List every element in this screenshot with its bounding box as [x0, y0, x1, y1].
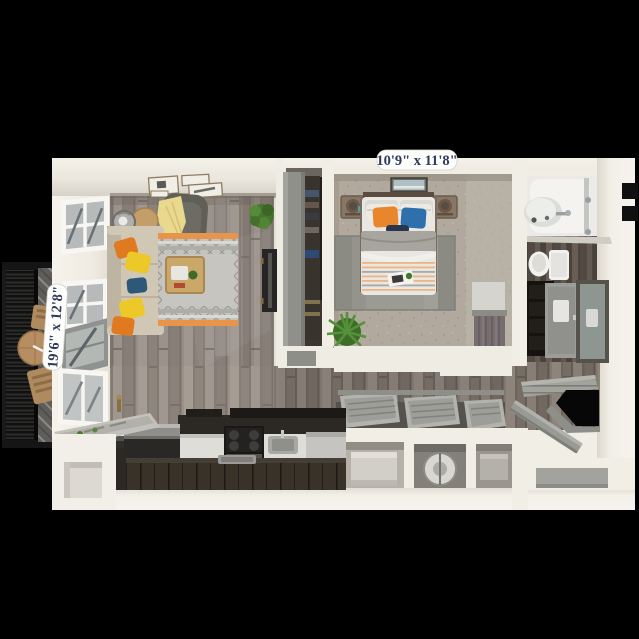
svg-text:10'9" x 11'8": 10'9" x 11'8": [376, 153, 457, 169]
